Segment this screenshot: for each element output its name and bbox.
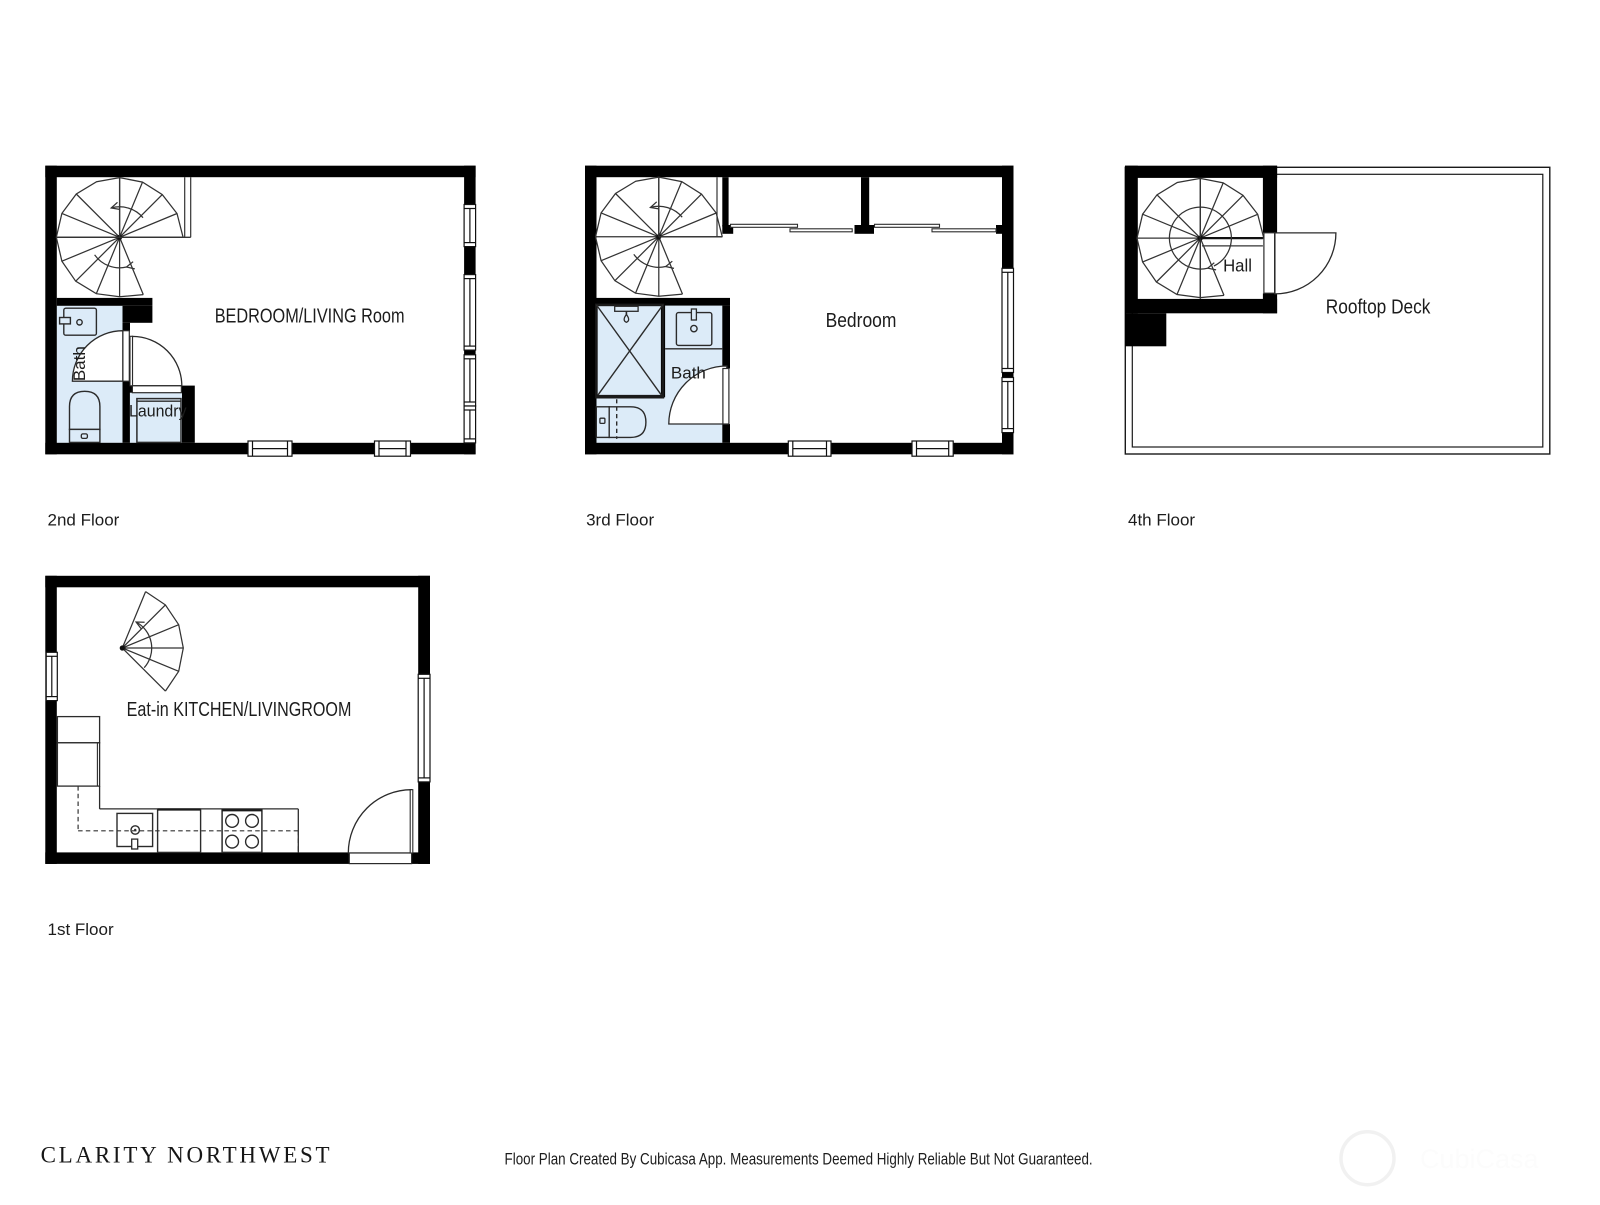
svg-text:Hall: Hall <box>1223 255 1252 276</box>
svg-text:1st Floor: 1st Floor <box>48 920 114 939</box>
svg-text:2nd Floor: 2nd Floor <box>48 511 120 530</box>
svg-text:Bath: Bath <box>70 346 89 381</box>
svg-text:Eat-in KITCHEN/LIVINGROOM: Eat-in KITCHEN/LIVINGROOM <box>127 698 352 720</box>
svg-text:3rd Floor: 3rd Floor <box>586 511 654 530</box>
svg-text:Rooftop Deck: Rooftop Deck <box>1326 295 1431 317</box>
svg-text:BEDROOM/LIVING Room: BEDROOM/LIVING Room <box>215 304 405 327</box>
svg-text:4th Floor: 4th Floor <box>1128 511 1195 530</box>
svg-text:CubiCasa: CubiCasa <box>1420 1144 1540 1174</box>
svg-text:Laundry: Laundry <box>129 402 187 421</box>
svg-text:Bath: Bath <box>671 364 706 383</box>
svg-text:Floor Plan Created By Cubicasa: Floor Plan Created By Cubicasa App. Meas… <box>505 1152 1093 1169</box>
svg-text:Bedroom: Bedroom <box>826 309 897 331</box>
svg-text:CLARITY NORTHWEST: CLARITY NORTHWEST <box>41 1143 333 1168</box>
